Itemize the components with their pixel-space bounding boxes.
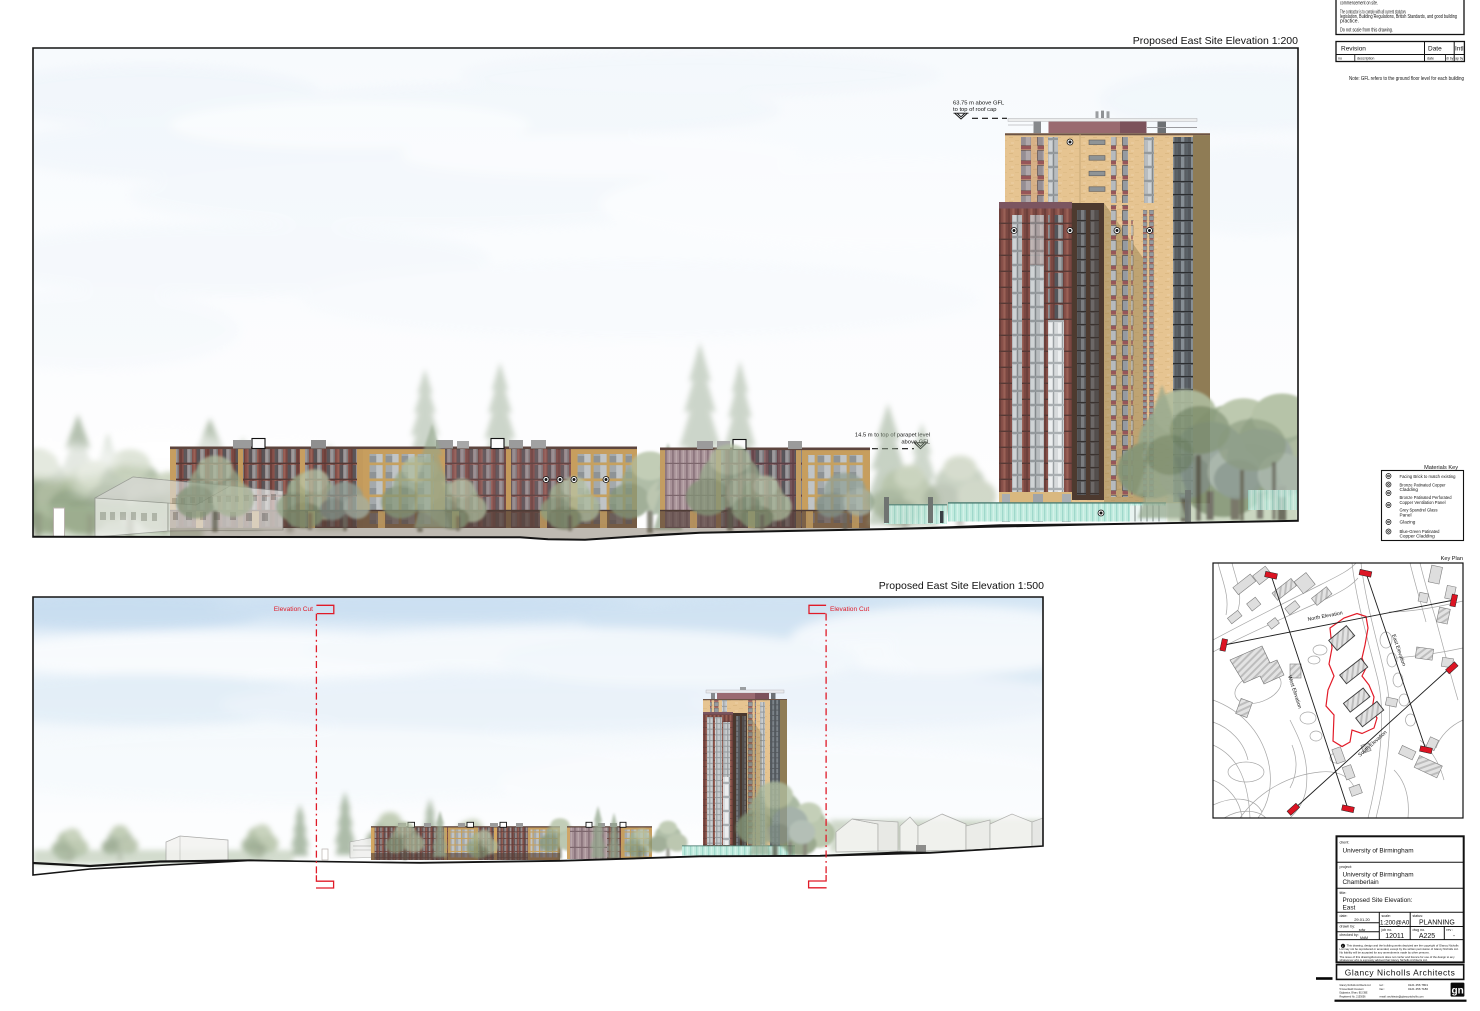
svg-text:Copper Ventilation Panel: Copper Ventilation Panel [1400,500,1446,505]
svg-text:job no.: job no. [1381,928,1393,932]
svg-text:Do not scale from this drawing: Do not scale from this drawing. [1340,28,1393,34]
svg-text:63.75 m above GFL: 63.75 m above GFL [953,101,1005,107]
svg-text:Key Plan: Key Plan [1441,556,1463,562]
svg-text:Proposed East Site Elevation 1: Proposed East Site Elevation 1:500 [879,580,1044,592]
svg-text:This drawing, design and the b: This drawing, design and the building wo… [1347,944,1460,948]
svg-text:project:: project: [1340,865,1352,869]
svg-text:date:: date: [1340,914,1348,918]
svg-text:gn: gn [1451,985,1463,996]
svg-text:commencement on site.: commencement on site. [1340,1,1378,7]
svg-text:status:: status: [1413,914,1424,918]
svg-text:Proposed Site Elevation:: Proposed Site Elevation: [1343,897,1413,904]
svg-text:title:: title: [1340,891,1347,895]
svg-text:fax :: fax : [1380,987,1386,991]
svg-text:dwg no.: dwg no. [1413,928,1426,932]
svg-text:sdw: sdw [1359,928,1366,932]
svg-text:Panel: Panel [1400,512,1412,517]
svg-text:Elevation Cut: Elevation Cut [830,606,869,613]
svg-text:No liability will be accepted: No liability will be accepted for any am… [1340,950,1430,954]
svg-text:Facing Brick to match existing: Facing Brick to match existing [1400,474,1456,479]
svg-text:PLANNING: PLANNING [1419,920,1455,927]
svg-text:East: East [1343,905,1356,912]
svg-text:ap by: ap by [1455,57,1463,61]
svg-text:Cladding: Cladding [1400,487,1419,492]
svg-text:description: description [1357,57,1374,61]
svg-text:Intl: Intl [1455,46,1464,53]
svg-text:Ltd may not be reproduced or a: Ltd may not be reproduced or amended, ex… [1340,947,1459,951]
svg-text:Registered No. 2153056: Registered No. 2153056 [1340,994,1366,998]
svg-text:client:: client: [1340,841,1350,845]
svg-text:Glazing: Glazing [1400,520,1416,525]
svg-text:Note: GFL refers to the ground: Note: GFL refers to the ground floor lev… [1349,76,1464,82]
svg-text:Elevation Cut: Elevation Cut [274,606,313,613]
svg-text:A225: A225 [1419,933,1435,940]
svg-text:date: date [1427,57,1434,61]
svg-text:Copper Cladding: Copper Cladding [1400,534,1436,539]
svg-text:rev :: rev : [1446,928,1453,932]
svg-text:Proposed East Site Elevation 1: Proposed East Site Elevation 1:200 [1133,35,1298,47]
svg-text:scale:: scale: [1382,914,1391,918]
svg-text:12011: 12011 [1385,933,1404,940]
svg-text:dr by: dr by [1446,57,1453,61]
svg-text:whatsoever who is expressly ad: whatsoever who is expressly advised that… [1340,958,1428,962]
svg-text:University of Birmingham: University of Birmingham [1343,872,1414,879]
svg-text:Date: Date [1428,46,1442,53]
svg-text:drawn by:: drawn by: [1340,925,1356,929]
svg-text:Revision: Revision [1341,46,1366,53]
svg-text:Chamberlain: Chamberlain [1343,879,1380,886]
svg-text:Glancy Nicholls Architects: Glancy Nicholls Architects [1345,968,1456,978]
svg-text:University of Birmingham: University of Birmingham [1343,848,1414,855]
svg-text:no: no [1338,57,1342,61]
svg-text:practice.: practice. [1340,19,1359,25]
svg-text:1:200@A0: 1:200@A0 [1380,920,1410,927]
svg-text:-: - [1453,934,1455,940]
svg-text:29.01.20: 29.01.20 [1354,917,1370,922]
svg-text:checked by:: checked by: [1340,933,1359,937]
svg-text:MdM: MdM [1360,936,1368,940]
svg-text:to top of roof cap: to top of roof cap [953,107,997,113]
svg-text:The issue of this drawing/docu: The issue of this drawing/document does … [1340,955,1456,959]
svg-text:0121 456 7180: 0121 456 7180 [1408,987,1428,991]
svg-text:email: architects@glancynicho: email: architects@glancynicholls.com [1380,994,1424,998]
